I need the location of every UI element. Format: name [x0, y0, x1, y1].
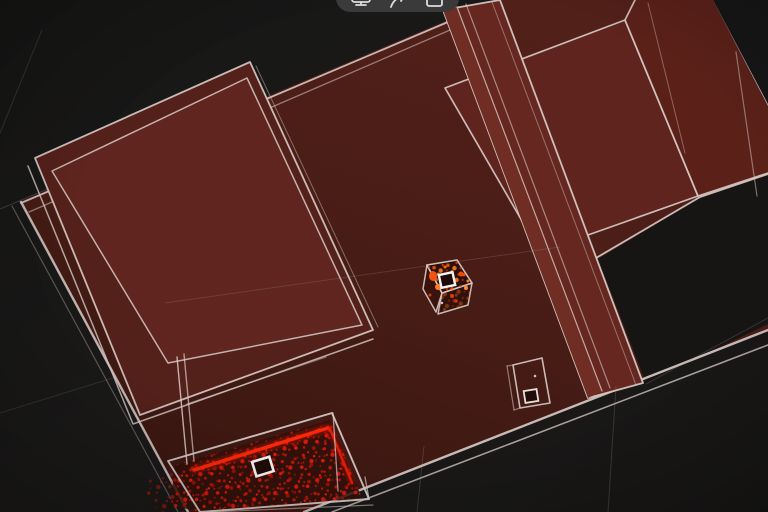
floating-toolbar: [336, 0, 459, 12]
viewport-3d[interactable]: [0, 0, 768, 512]
scene-canvas[interactable]: [0, 0, 768, 512]
vignette-overlay: [0, 0, 768, 512]
